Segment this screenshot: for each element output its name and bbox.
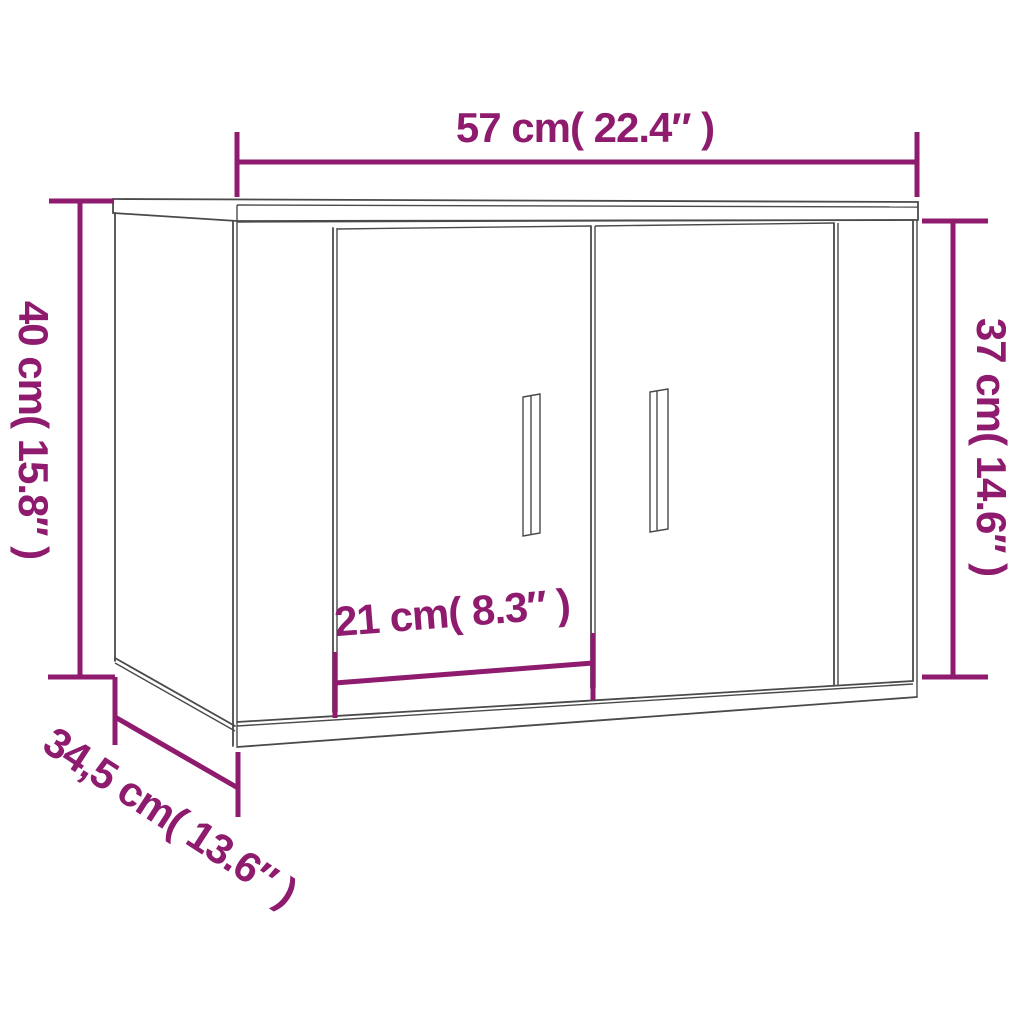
label-height-right: 37 cm( 14.6″ ) [967,318,1015,576]
dimension-line-door-width [335,633,593,718]
door-handle-left [523,394,540,536]
diagram-canvas: 57 cm( 22.4″ ) 40 cm( 15.8″ ) 37 cm( 14.… [0,0,1024,1024]
cabinet-front-face [237,220,917,747]
door-handle-right [650,389,668,532]
cabinet-line-drawing [0,0,1024,1024]
cabinet-top-slab [113,199,918,221]
dimension-line-height-left [48,201,115,677]
cabinet-left-side-panel [115,213,237,746]
label-height-left: 40 cm( 15.8″ ) [9,301,57,559]
label-width: 57 cm( 22.4″ ) [456,104,714,152]
